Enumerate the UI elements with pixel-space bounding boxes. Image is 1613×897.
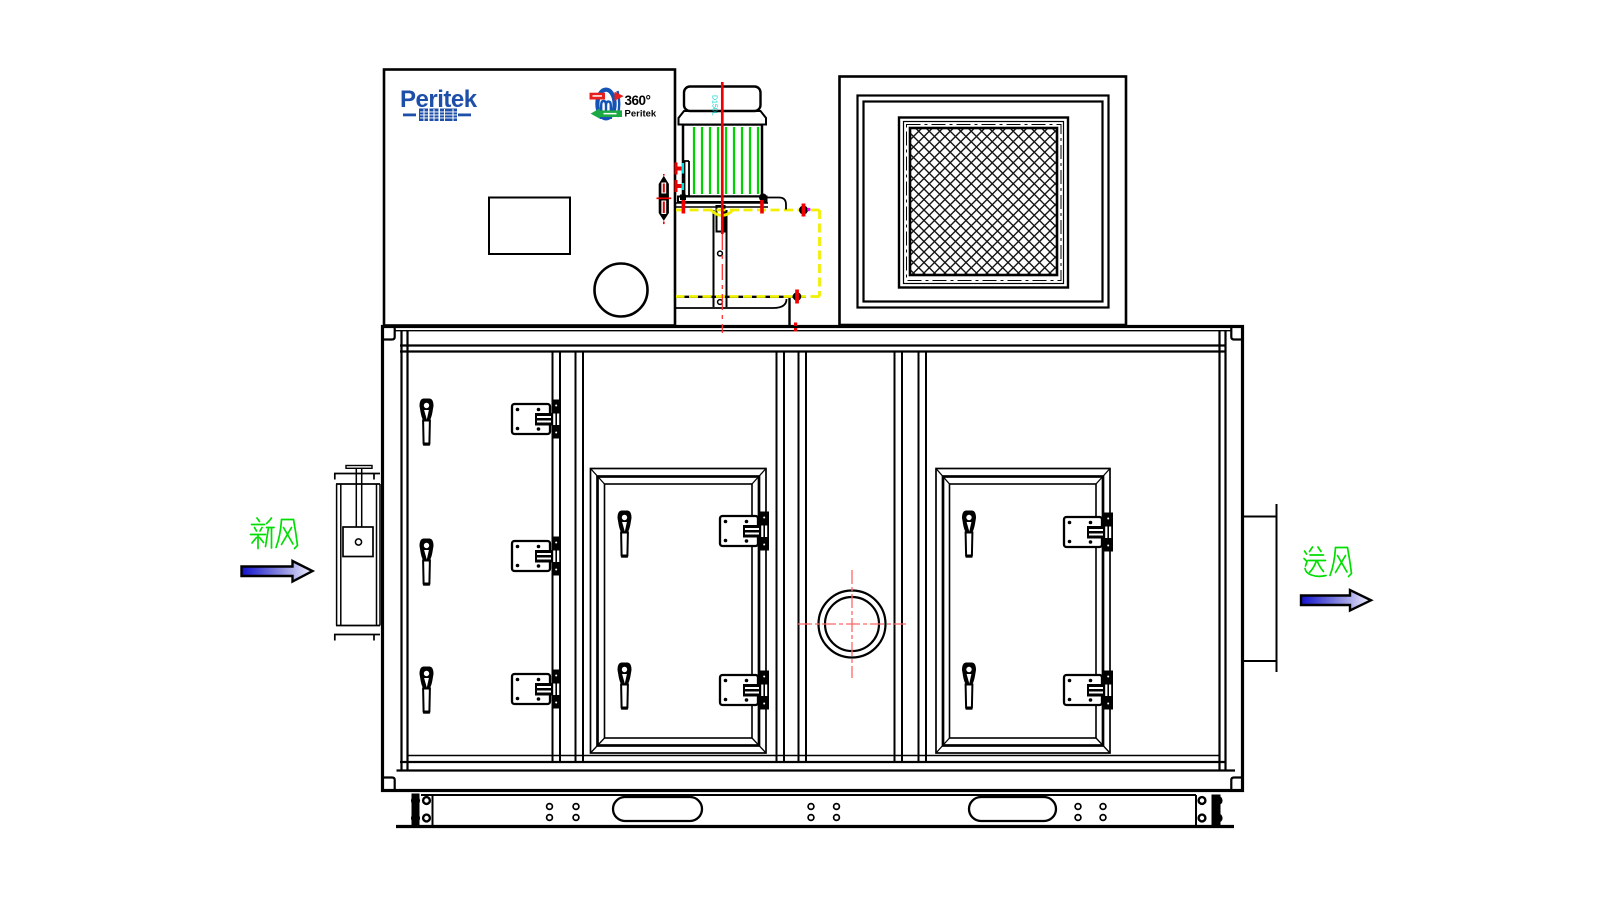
- svg-text:360°: 360°: [625, 93, 651, 108]
- svg-text:D150L: D150L: [711, 95, 718, 116]
- svg-text:Peritek: Peritek: [400, 86, 478, 113]
- svg-text:Peritek: Peritek: [625, 109, 657, 120]
